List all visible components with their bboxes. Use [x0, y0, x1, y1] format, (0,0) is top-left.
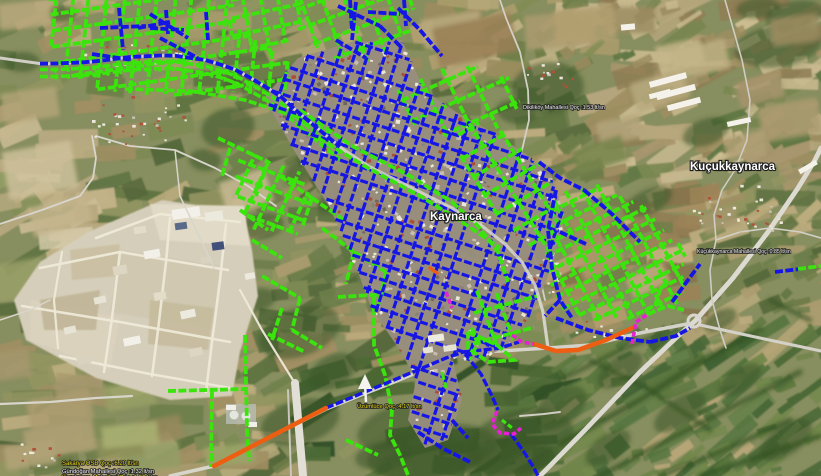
svg-text:Küçükkaynarca Mahallesi Qoç :0: Küçükkaynarca Mahallesi Qoç :0.85 lt/sn: [697, 249, 791, 255]
svg-text:Sakarya OSB Qoç :6.20 lt/sn: Sakarya OSB Qoç :6.20 lt/sn: [62, 461, 139, 467]
svg-text:Dikiliköy Mahallesi Qoç :1.53: Dikiliköy Mahallesi Qoç :1.53 lt/sn: [523, 105, 605, 111]
svg-text:Kaynarca: Kaynarca: [430, 211, 482, 223]
svg-text:Kuçukkaynarca: Kuçukkaynarca: [690, 161, 776, 173]
svg-text:Gündoğan Mahallesi Qoç :1.32 l: Gündoğan Mahallesi Qoç :1.32 lt/sn: [62, 469, 154, 475]
svg-text:Üzümlüce Qoç :4.17 lt/sn: Üzümlüce Qoç :4.17 lt/sn: [357, 403, 422, 410]
